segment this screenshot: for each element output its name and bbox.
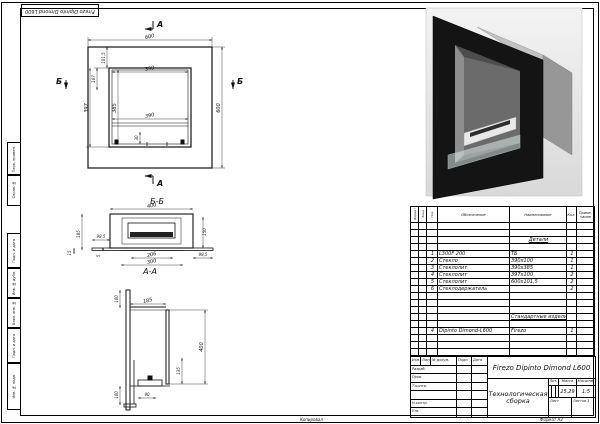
mass-label: Масса [559, 379, 577, 385]
table-row [411, 335, 595, 342]
dim-bb-inner: 150 [202, 228, 207, 236]
dim-frame-width: 101,5 [101, 52, 106, 64]
reversed-designation-stamp: Firezo Dipinto Dimond L600 [21, 4, 99, 17]
table-row [411, 342, 595, 349]
sig-row: Н.контр. [411, 400, 487, 409]
front-view: 600 101,5 390 385 390 30 107 397 600 А А… [52, 18, 257, 196]
sheet-label: Лист [549, 398, 572, 417]
table-row: 5Стеклолит600х101,52 [411, 279, 595, 286]
table-row [411, 300, 595, 307]
margin-box-inv-dubl: Инв. № дубл. [7, 267, 21, 299]
burner-logo-text: FIREZO [146, 227, 157, 231]
dim-aa-base: 90 [144, 392, 150, 397]
dim-bb-depth: 185 [76, 230, 81, 238]
lit-label: Лит. [549, 379, 559, 385]
dim-aa-bottom: 100 [114, 391, 119, 399]
table-row [411, 349, 595, 356]
table-row [411, 244, 595, 251]
mass-value: 25,29 [559, 386, 577, 397]
margin-box-inv-podl: Инв. № подл. [7, 362, 21, 410]
bb-geometry [92, 214, 213, 251]
spec-header-designation: Обозначение [438, 207, 510, 223]
margin-box-vzam-inv: Взам. инв. № [7, 297, 21, 329]
margin-box-podp-data-2: Подп. и дата [7, 327, 21, 364]
table-row: 3Стеклолит390х3851 [411, 265, 595, 272]
copied-by-label: Копировал [300, 417, 323, 422]
spec-header-zone: Зона [419, 207, 427, 223]
dim-inner-height: 385 [112, 103, 118, 113]
dim-bb-side-right: 98,5 [199, 252, 208, 257]
front-view-dim-lines [86, 37, 225, 168]
section-aa-view: А-А 100 185 400 135 100 90 [78, 264, 223, 419]
table-row: 1L300F 200ТБ1 [411, 251, 595, 258]
section-aa-label: А-А [142, 267, 157, 276]
dim-aa-height: 400 [199, 342, 205, 352]
sig-header-row: Изм. Лист № докум. Подп. Дата [411, 357, 487, 366]
table-row [411, 223, 595, 230]
scale-value: 1:5 [577, 386, 595, 397]
render-3d-view [420, 5, 590, 200]
document-name: Firezo Dipinto Dimond L600 [488, 357, 595, 379]
spec-header-note: Приме- чание [577, 207, 595, 223]
title-block-main: Firezo Dipinto Dimond L600 Технологическ… [487, 357, 595, 417]
dim-opening-height: 397 [84, 102, 90, 112]
dim-bb-gap: 5 [96, 254, 101, 257]
spec-header-qty: Кол. [567, 207, 577, 223]
spec-section-details: Детали [411, 237, 595, 244]
format-label: Формат А3 [540, 417, 563, 422]
front-view-dim-text: 600 101,5 390 385 390 30 107 397 600 [84, 33, 222, 140]
dim-bb-lip: 15 [67, 250, 72, 256]
title-block-signatures: Изм. Лист № докум. Подп. Дата Разраб. Пр… [411, 357, 487, 417]
spec-header-pos: Поз. [427, 207, 438, 223]
table-row [411, 230, 595, 237]
sheets-label-value: Листов 1 [572, 398, 595, 417]
table-row [411, 321, 595, 328]
specification-table: Формат Зона Поз. Обозначение Наименовани… [410, 206, 595, 356]
spec-header-format: Формат [411, 207, 419, 223]
dim-top-offset: 107 [91, 75, 96, 83]
dim-inner-width-bottom: 390 [144, 112, 155, 120]
dim-glass-height: 30 [134, 135, 139, 141]
section-mark-b-left: Б [56, 77, 62, 86]
sig-row: Т.контр. [411, 383, 487, 392]
title-block-attributes: Лит. Масса Масштаб 25,29 1:5 Лист Листов… [549, 379, 595, 417]
section-mark-b-right: Б [237, 77, 243, 86]
section-mark-a-top: А [156, 20, 163, 29]
sig-row: Пров. [411, 374, 487, 383]
table-row: 4Dipinto Dimond-L600Firezo1 [411, 328, 595, 335]
aa-dim-text: 100 185 400 135 100 90 [114, 295, 205, 399]
dim-bb-side-left: 98,5 [97, 234, 106, 239]
margin-box-perv-primen: Перв. примен. [7, 142, 21, 176]
table-row: 4Стеклолит397х1002 [411, 272, 595, 279]
dim-aa-inner: 135 [176, 367, 181, 375]
spec-section-standard: Стандартные изделия [411, 314, 595, 321]
reversed-designation-text: Firezo Dipinto Dimond L600 [25, 8, 95, 14]
sig-row: Разраб. [411, 366, 487, 375]
margin-box-podp-data-1: Подп. и дата [7, 233, 21, 269]
dim-aa-top: 100 [114, 295, 119, 303]
sig-row: Утв. [411, 408, 487, 417]
title-block: Изм. Лист № докум. Подп. Дата Разраб. Пр… [410, 356, 596, 418]
firebox-left-wall [455, 45, 464, 163]
spec-header-row: Формат Зона Поз. Обозначение Наименовани… [411, 207, 595, 223]
margin-box-sprav-no: Справ. № [7, 174, 21, 206]
sig-row [411, 391, 487, 400]
dim-height-right: 600 [216, 103, 222, 113]
table-row: 2Стекло390х1001 [411, 258, 595, 265]
section-bb-view: Б-Б FIREZO 400 185 98,5 150 206 [58, 192, 243, 272]
table-row [411, 293, 595, 300]
table-row [411, 307, 595, 314]
table-row: 6Стеклодержатель2 [411, 286, 595, 293]
dim-width-top: 600 [144, 33, 155, 41]
spec-header-name: Наименование [510, 207, 567, 223]
drawing-sheet: Firezo Dipinto Dimond L600 Перв. примен.… [0, 0, 600, 424]
dim-bb-width: 400 [146, 202, 157, 210]
dim-inner-width-top: 390 [144, 65, 155, 73]
scale-label: Масштаб [577, 379, 595, 385]
dim-aa-depth: 185 [142, 297, 153, 305]
document-type: Технологическая сборка [488, 379, 549, 417]
section-mark-a-bottom: А [156, 179, 163, 188]
